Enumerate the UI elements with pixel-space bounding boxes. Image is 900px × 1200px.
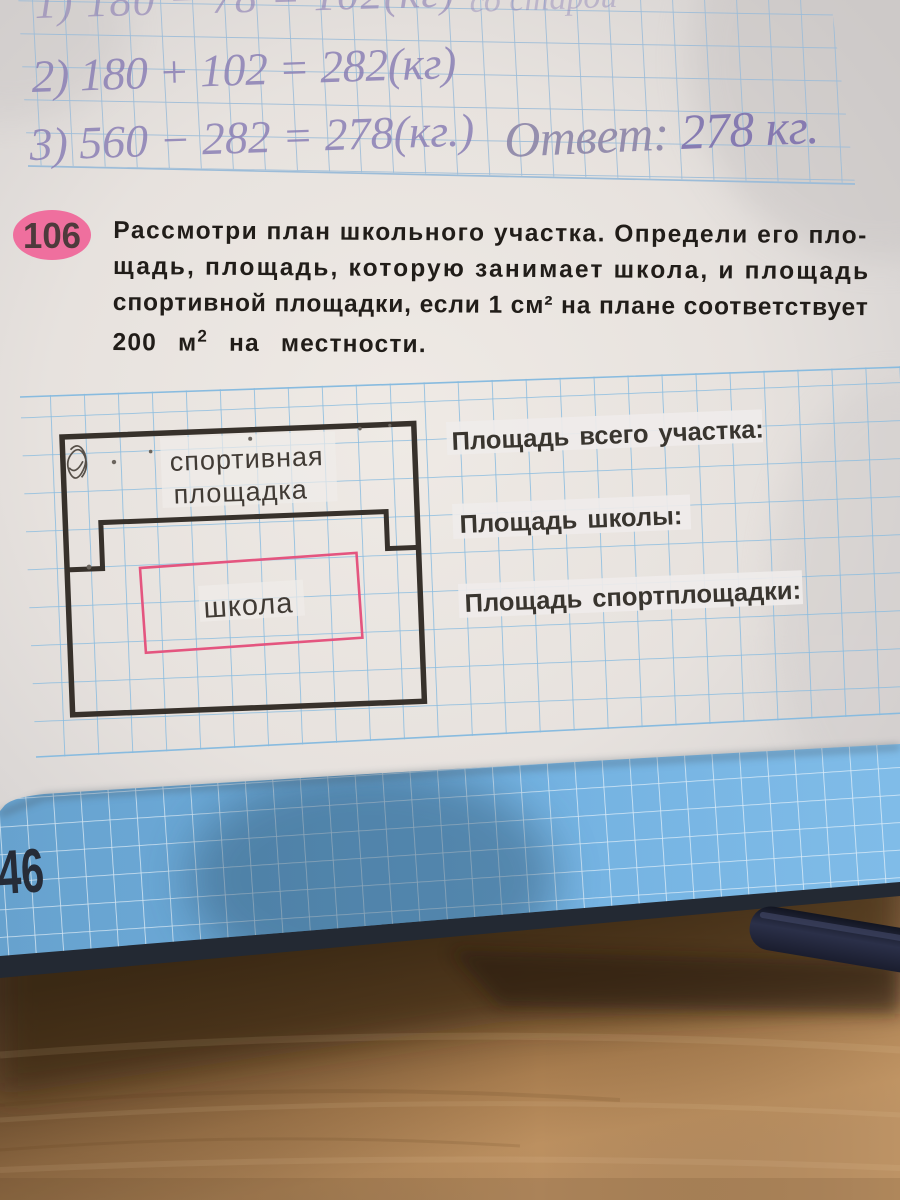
svg-text:спортивная: спортивная [169,441,324,477]
svg-text:Рассмотри план школьного участ: Рассмотри план школьного участка. Опреде… [113,217,866,249]
svg-text:106: 106 [23,215,81,256]
svg-text:площадка: площадка [173,474,308,509]
svg-text:46: 46 [0,836,46,908]
svg-text:спортивной площадки, если 1 см: спортивной площадки, если 1 см² на плане… [113,289,868,321]
svg-text:школа: школа [203,587,295,624]
svg-text:200 м2 на местности.: 200 м2 на местности. [112,326,426,358]
svg-text:щадь, площадь, которую занимае: щадь, площадь, которую занимает школа, и… [113,253,868,285]
